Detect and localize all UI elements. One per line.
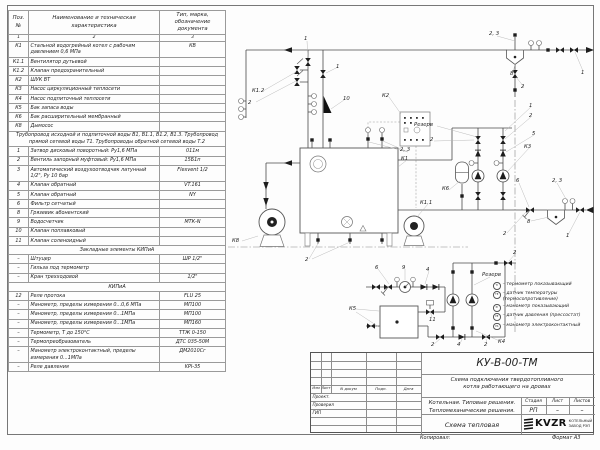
document-title: Схема подключения твердотопливного котла… (421, 377, 593, 391)
schematic-label: 2 (430, 137, 433, 143)
schematic-label: 2, 3 (400, 147, 410, 153)
schematic-label: К6 (442, 186, 449, 192)
blower-fan-k1-1 (404, 216, 424, 246)
spec-row: К1.2Клапан предохранительный (9, 67, 226, 76)
sig-col-data: Дата (396, 386, 421, 391)
col-number-row: 1 2 3 (9, 35, 226, 42)
stage-label: Стадия (521, 399, 546, 404)
legend-item: TE– датчик температуры(термосопротивлени… (493, 291, 599, 302)
spec-row: К2ШУК ВТ (9, 76, 226, 85)
mud-strainer-return (548, 210, 565, 225)
spec-row: 6Фильтр сетчатый (9, 199, 226, 208)
schematic-label: 11 (429, 317, 436, 323)
project-name: Котельная. Типовые решения. Тепломеханич… (423, 399, 521, 415)
sheet-value: – (546, 407, 569, 414)
title-block: Изм Лист N докум Подп. Дата Проект. Пров… (310, 352, 594, 433)
spec-row: 12Реле протокаFLU 25 (9, 291, 226, 300)
copied-label: Копировал: (420, 435, 450, 441)
spec-row: –Манометр, пределы измерения 0...1МПаМП1… (9, 310, 226, 319)
schematic-label: 6 (375, 265, 378, 271)
flue-arrows (263, 47, 292, 206)
legend-item: PI– манометр показывающий (493, 304, 599, 312)
spec-row: –Манометр, пределы измерения 0...1МПаМП1… (9, 319, 226, 328)
spec-row: 10Клапан поплавковый (9, 227, 226, 236)
schematic-label: 2 (484, 342, 487, 348)
legend-text: – манометр электроконтактный (503, 323, 581, 329)
schematic-label: 10 (343, 96, 350, 102)
legend-item: TI– термометр показывающий (493, 282, 599, 290)
legend-text-2: (термосопротивление) (503, 297, 558, 303)
format-label: Формат А3 (552, 435, 580, 441)
schematic-label: 4 (457, 342, 460, 348)
spec-row: –Гильза под термометр (9, 264, 226, 273)
schematic-label: 5 (532, 131, 535, 137)
sig-col-list: Лист (321, 386, 331, 390)
spec-row: –Кран трехходовой1/2" (9, 273, 226, 282)
schematic-label: К1.2 (252, 88, 264, 94)
spec-row: –ШтуцерШР 1/2" (9, 255, 226, 264)
schematic-label: 2 (431, 342, 434, 348)
schematic-label: 2, 3 (489, 31, 499, 37)
spec-row: 2Вентиль запорный муфтовый: Ру1,6 МПа15Б… (9, 156, 226, 165)
control-cabinet-k2 (400, 112, 430, 146)
spec-section-row: Закладные элементы КИПиА (9, 245, 226, 254)
y-filter-return (523, 207, 535, 219)
stage-value: РП (521, 407, 546, 414)
spec-row: 8Грязевик абонентский (9, 209, 226, 218)
smoke-exhauster-k8 (259, 209, 285, 247)
schematic-label: 9 (402, 265, 405, 271)
schematic-label: Резерв (414, 122, 433, 128)
spec-row: 1Затвор дисковый поворотный: Ру1,6 МПа01… (9, 147, 226, 156)
schematic-label: 2 (503, 231, 506, 237)
schematic-label: 1 (336, 64, 339, 70)
sheets-label: Листов (569, 399, 595, 404)
instrument-tag-icon: TI (493, 282, 501, 290)
schematic-label: 8 (527, 219, 530, 225)
spec-section-row: КИПиА (9, 282, 226, 291)
instrument-tag-icon: PI (493, 304, 501, 312)
instrument-tag-icon: PE (493, 313, 501, 321)
spec-row: К4Насос подпиточный теплосети (9, 94, 226, 103)
col-header-pos: Поз. № (9, 11, 29, 35)
spec-table-body: К1Стальной водогрейный котел с рабочим д… (9, 42, 226, 372)
spec-row: –Реле давленияKPI-35 (9, 363, 226, 372)
legend-item: PE– датчик давления (прессостат) (493, 313, 599, 321)
schematic-label: К1 (401, 156, 408, 162)
schematic-label: 2 (529, 113, 532, 119)
schematic-label: 2, 3 (552, 178, 562, 184)
schematic-label: К2 (382, 93, 389, 99)
spec-row: К3Насос циркуляционный теплосети (9, 85, 226, 94)
spec-row: 4Клапан обратныйVT.161 (9, 181, 226, 190)
spec-row: –Манометр электроконтактный, пределы изм… (9, 347, 226, 363)
drain-valve (316, 238, 319, 241)
schematic-label: 2 (248, 100, 251, 106)
spec-row: К1Стальной водогрейный котел с рабочим д… (9, 42, 226, 58)
instrument-tag-icon: PS (493, 323, 501, 331)
spec-row: К8Дымосос (9, 122, 226, 131)
legend-text: – датчик давления (прессостат) (503, 313, 581, 319)
schematic-label: К1.1 (420, 200, 432, 206)
spec-row: –Манометр, пределы измерения 0...0,6 МПа… (9, 301, 226, 310)
schematic-label: К3 (524, 144, 531, 150)
spec-row: 9ВодосчетчикМТК-N (9, 218, 226, 227)
kvzr-waves-icon (523, 418, 534, 430)
spec-section-row: Трубопровод исходной и подпиточной воды … (9, 131, 226, 147)
spec-row: –Термометр, Т до 150°СТТЖ 0-150 (9, 328, 226, 337)
schematic-label: Резерв (482, 272, 501, 278)
instrument-tag-icon: TE (493, 291, 501, 299)
spec-row: 3Автоматический воздухоотводчик латунный… (9, 165, 226, 181)
schematic-label: 2 (513, 250, 516, 256)
sig-col-podp: Подп. (366, 386, 396, 391)
float-valve-10 (324, 96, 332, 113)
schematic-label: 8 (510, 71, 513, 77)
boiler-sensors (239, 94, 385, 142)
schematic-label: 4 (426, 267, 429, 273)
schematic-label: К4 (498, 339, 505, 345)
boiler-k1 (300, 148, 398, 246)
spec-row: К6Бак расширительный мембранный (9, 113, 226, 122)
instrument-legend: TI– термометр показывающийTE– датчик тем… (493, 282, 599, 332)
sig-col-ndoc: N докум (331, 386, 366, 391)
y-filter-feed (381, 284, 392, 295)
kvzr-wordmark: KVZR (535, 418, 567, 429)
col-header-name: Наименование и техническая характеристик… (29, 11, 160, 35)
company-name: КОТЕЛЬНЫЙ ЗАВОД РЭП (569, 419, 593, 428)
water-meter-9 (372, 277, 439, 292)
drain-valve (380, 238, 383, 241)
schematic-label: 1 (581, 70, 584, 76)
sig-role-project: Проект. (313, 394, 330, 399)
legend-text: – термометр показывающий (503, 282, 572, 288)
sheet-label: Лист (546, 399, 569, 404)
sheets-value: – (569, 407, 595, 414)
schematic-label: 1 (566, 233, 569, 239)
company-logo: KVZR КОТЕЛЬНЫЙ ЗАВОД РЭП (523, 415, 593, 432)
sig-role-checked: Проверил (313, 402, 334, 407)
spec-row: 5Клапан обратныйNY (9, 190, 226, 199)
legend-item: PS– манометр электроконтактный (493, 323, 599, 331)
spec-row: К5Бак запаса воды (9, 103, 226, 112)
spec-row: –ТермопреобразовательДТС 035-50М (9, 338, 226, 347)
mud-strainer-supply (507, 50, 524, 65)
schematic-label: 1 (529, 103, 532, 109)
spec-row: 11Клапан соленоидный (9, 236, 226, 245)
schematic-label: 1 (304, 36, 307, 42)
spec-table: Поз. № Наименование и техническая характ… (8, 10, 226, 372)
document-code: КУ-В-00-ТМ (421, 353, 593, 374)
drain-valve (348, 238, 351, 241)
drawing-sheet: 11К1.2210К22, 3182Резерв2125К32, 3К1К6К1… (0, 0, 600, 450)
spec-row: К1.1Вентилятор дутьевой (9, 57, 226, 66)
col-header-type: Тип, марка, обозначение документа (160, 11, 226, 35)
schematic-label: 6 (516, 178, 519, 184)
drawing-name: Схема тепловая (423, 421, 521, 429)
schematic-label: К5 (349, 306, 356, 312)
schematic-label: 2 (521, 84, 524, 90)
schematic-label: 2 (305, 257, 308, 263)
sig-col-izm: Изм (311, 386, 321, 390)
legend-text: – манометр показывающий (503, 304, 569, 310)
legend-text: – датчик температуры(термосопротивление) (503, 291, 558, 302)
sig-role-gip: ГИП (313, 410, 322, 415)
schematic-label: К8 (232, 238, 239, 244)
